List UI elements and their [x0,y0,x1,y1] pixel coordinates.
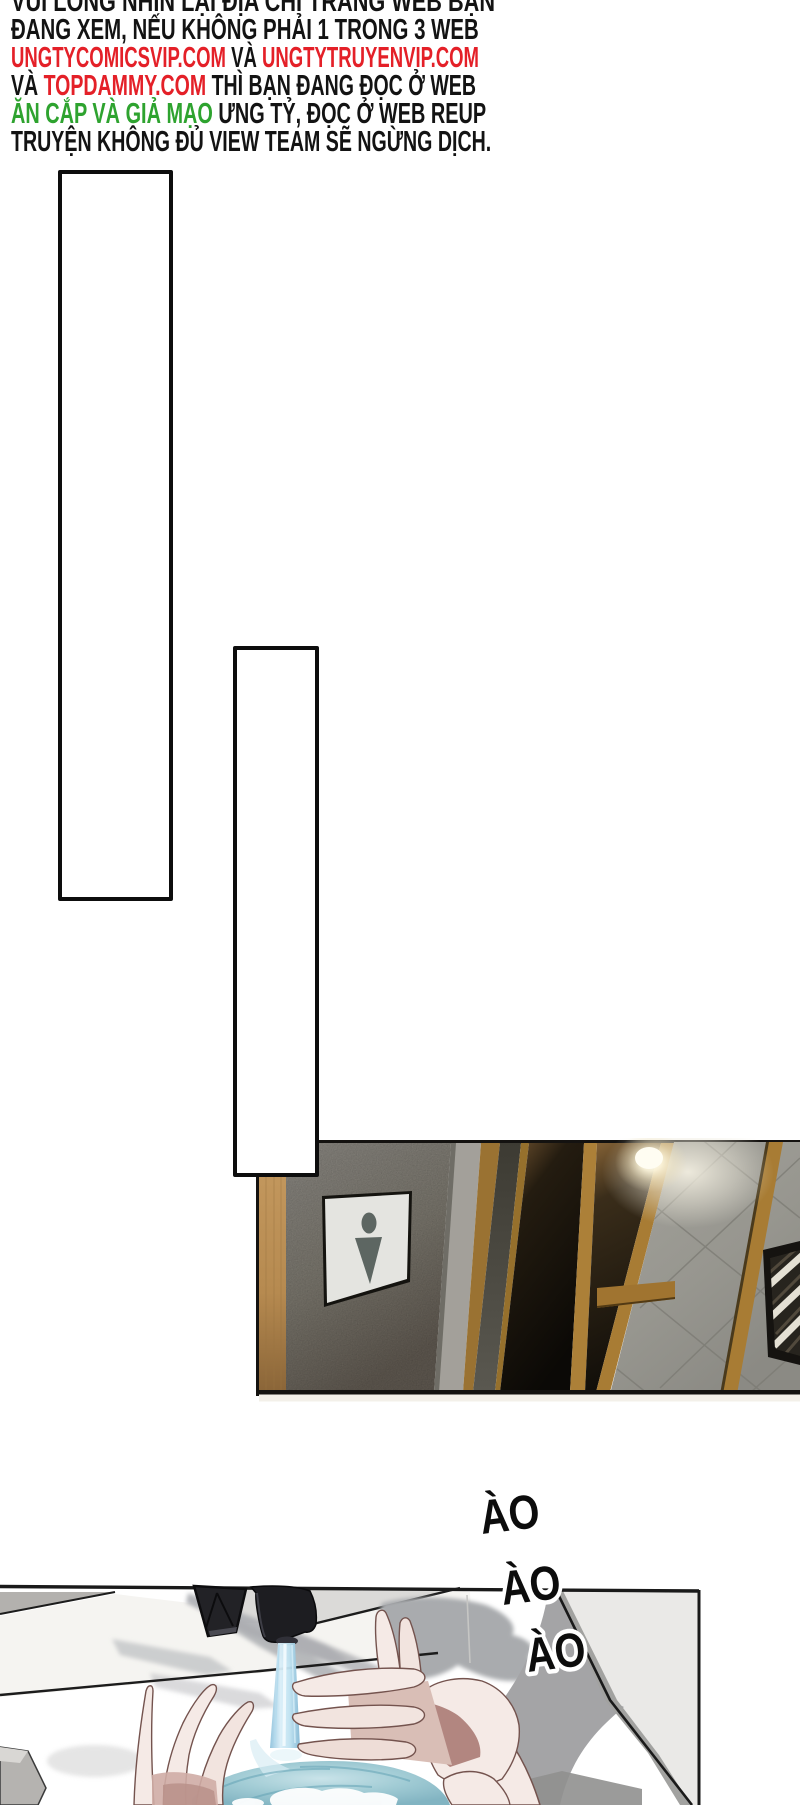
svg-text:ÀO: ÀO [477,1484,543,1545]
svg-text:ÀO: ÀO [523,1622,589,1683]
svg-text:ÀO: ÀO [498,1555,564,1616]
